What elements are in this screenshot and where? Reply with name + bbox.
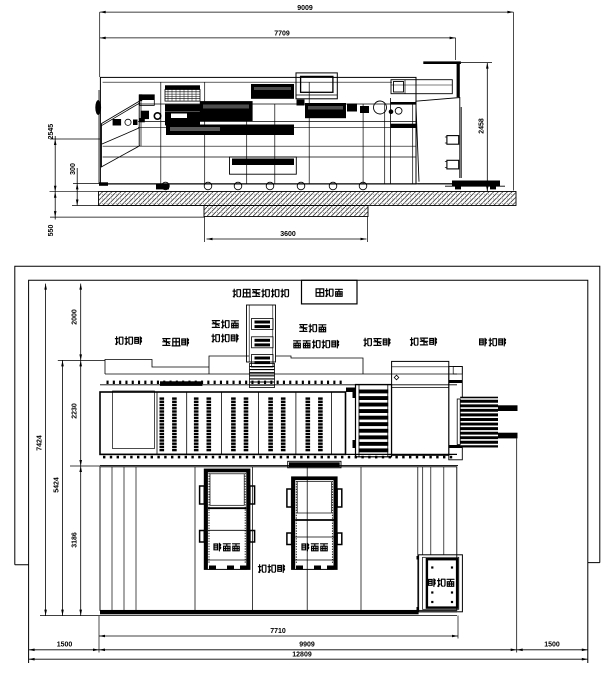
svg-text:1500: 1500 <box>57 642 73 649</box>
svg-text:7424: 7424 <box>37 435 44 451</box>
svg-text:550: 550 <box>48 225 55 237</box>
svg-text:1500: 1500 <box>544 642 560 649</box>
svg-text:7710: 7710 <box>270 628 286 635</box>
svg-text:9009: 9009 <box>297 5 313 12</box>
svg-text:12809: 12809 <box>292 652 312 659</box>
svg-text:3186: 3186 <box>72 532 79 548</box>
svg-text:5424: 5424 <box>53 477 60 493</box>
svg-text:2230: 2230 <box>72 403 79 419</box>
svg-text:2545: 2545 <box>48 124 55 140</box>
svg-text:3600: 3600 <box>280 231 296 238</box>
svg-text:2458: 2458 <box>479 118 486 134</box>
svg-text:2000: 2000 <box>72 309 79 325</box>
svg-text:7709: 7709 <box>274 31 290 38</box>
svg-text:9909: 9909 <box>299 642 315 649</box>
svg-text:300: 300 <box>70 163 77 175</box>
